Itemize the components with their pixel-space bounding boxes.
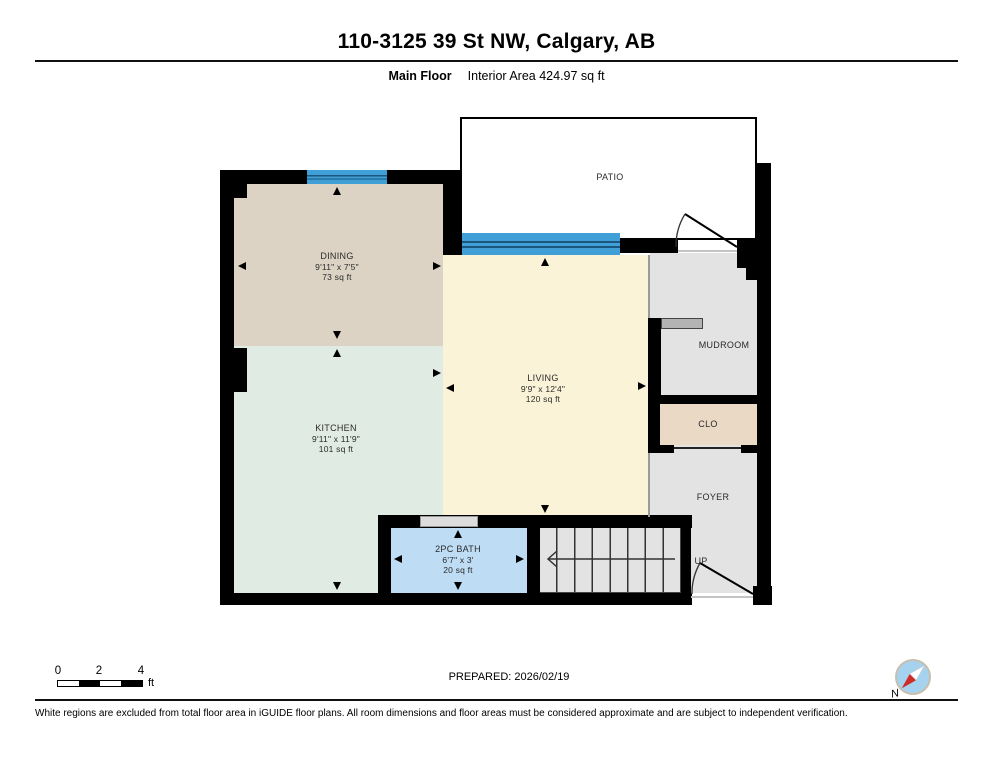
- scale-bar: [57, 680, 143, 687]
- stairs-up-label: UP: [694, 556, 707, 567]
- dim-arrow-down-icon: [454, 582, 462, 590]
- room-area: 101 sq ft: [312, 444, 360, 455]
- foyer-label: FOYER: [697, 492, 730, 503]
- disclaimer-text: White regions are excluded from total fl…: [35, 708, 958, 719]
- dim-arrow-down-icon: [541, 505, 549, 513]
- prepared-date: PREPARED: 2026/02/19: [449, 671, 570, 683]
- room-dims: 9'11" x 7'5": [315, 262, 359, 273]
- scale-unit: ft: [148, 677, 154, 689]
- footer-divider: [35, 699, 958, 701]
- room-area: 120 sq ft: [521, 394, 565, 405]
- kitchen-label: KITCHEN 9'11" x 11'9" 101 sq ft: [312, 423, 360, 455]
- wall-dining-right: [443, 170, 462, 255]
- dim-arrow-up-icon: [541, 258, 549, 266]
- room-dims: 9'9" x 12'4": [521, 384, 565, 395]
- room-name: FOYER: [697, 492, 730, 503]
- dining-window: [307, 170, 387, 184]
- wall-left: [220, 170, 234, 605]
- floor-subtitle: Main FloorInterior Area 424.97 sq ft: [0, 69, 993, 83]
- dim-arrow-up-icon: [333, 187, 341, 195]
- living-label: LIVING 9'9" x 12'4" 120 sq ft: [521, 373, 565, 405]
- dim-arrow-down-icon: [333, 582, 341, 590]
- floorplan-page: 110-3125 39 St NW, Calgary, AB Main Floo…: [0, 0, 993, 768]
- patio-sliding-door: [462, 233, 620, 255]
- direction-label: UP: [694, 556, 707, 567]
- interior-area: Interior Area 424.97 sq ft: [468, 69, 605, 83]
- room-area: 20 sq ft: [435, 565, 481, 576]
- mudroom-label: MUDROOM: [699, 340, 750, 351]
- dim-arrow-left-icon: [394, 555, 402, 563]
- scale-tick-0: 0: [55, 665, 61, 677]
- dim-arrow-left-icon: [238, 262, 246, 270]
- wall-top-left: [220, 170, 307, 184]
- living-foyer-line: [648, 453, 650, 517]
- wall-closet-bottom-right: [741, 445, 757, 453]
- bath-label: 2PC BATH 6'7" x 3' 20 sq ft: [435, 544, 481, 576]
- dim-arrow-right-icon: [433, 262, 441, 270]
- page-title: 110-3125 39 St NW, Calgary, AB: [0, 30, 993, 54]
- dining-label: DINING 9'11" x 7'5" 73 sq ft: [315, 251, 359, 283]
- scale-segment: [100, 681, 121, 686]
- room-name: 2PC BATH: [435, 544, 481, 555]
- wall-mudroom-left: [648, 318, 661, 397]
- dim-arrow-right-icon: [433, 369, 441, 377]
- wall-closet-bottom-left: [648, 445, 674, 453]
- scale-tick-4: 4: [138, 665, 144, 677]
- wall-bath-right: [527, 515, 540, 605]
- scale-tick-2: 2: [96, 665, 102, 677]
- wall-mudroom-closet: [648, 395, 757, 404]
- entry-door-swing: [675, 548, 760, 603]
- wall-bath-left: [378, 515, 391, 605]
- dim-arrow-right-icon: [638, 382, 646, 390]
- mudroom-shelf: [661, 318, 703, 329]
- floor-name: Main Floor: [388, 69, 451, 83]
- room-name: DINING: [315, 251, 359, 262]
- room-dims: 6'7" x 3': [435, 555, 481, 566]
- room-name: MUDROOM: [699, 340, 750, 351]
- dim-arrow-right-icon: [516, 555, 524, 563]
- dim-arrow-up-icon: [454, 530, 462, 538]
- scale-segment: [79, 681, 100, 686]
- header-divider: [35, 60, 958, 62]
- scale-segment: [121, 681, 142, 686]
- closet-label: CLO: [698, 419, 717, 430]
- patio-door-swing: [655, 198, 750, 258]
- wall-bottom: [220, 593, 692, 605]
- dim-arrow-left-icon: [238, 371, 246, 379]
- room-area: 73 sq ft: [315, 272, 359, 283]
- dim-arrow-up-icon: [333, 349, 341, 357]
- dim-arrow-down-icon: [333, 331, 341, 339]
- room-name: PATIO: [596, 172, 623, 183]
- living-mudroom-line: [648, 255, 650, 318]
- room-dims: 9'11" x 11'9": [312, 434, 360, 445]
- patio-label: PATIO: [596, 172, 623, 183]
- dim-arrow-left-icon: [446, 384, 454, 392]
- scale-segment: [58, 681, 79, 686]
- room-name: CLO: [698, 419, 717, 430]
- room-name: KITCHEN: [312, 423, 360, 434]
- closet-door-line: [674, 447, 741, 449]
- wall-dining-notch: [234, 184, 247, 198]
- room-name: LIVING: [521, 373, 565, 384]
- bath-vanity: [420, 516, 478, 527]
- stairs-arrow-icon: [540, 545, 682, 573]
- wall-right: [757, 163, 771, 605]
